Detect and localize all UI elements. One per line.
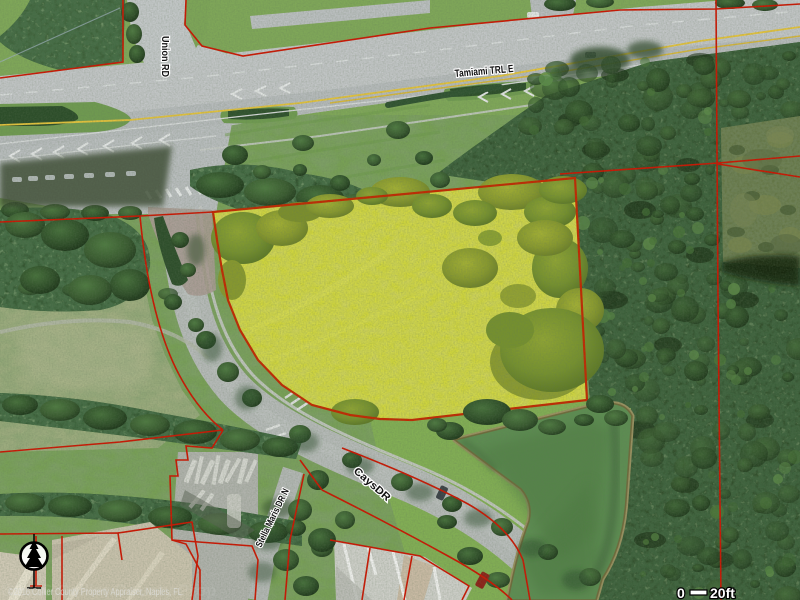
- svg-text:Union RD: Union RD: [159, 36, 171, 77]
- svg-text:20ft: 20ft: [710, 585, 735, 600]
- svg-text:0: 0: [677, 585, 685, 600]
- svg-text:©2016 Collier County Property: ©2016 Collier County Property Appraiser,…: [8, 587, 184, 598]
